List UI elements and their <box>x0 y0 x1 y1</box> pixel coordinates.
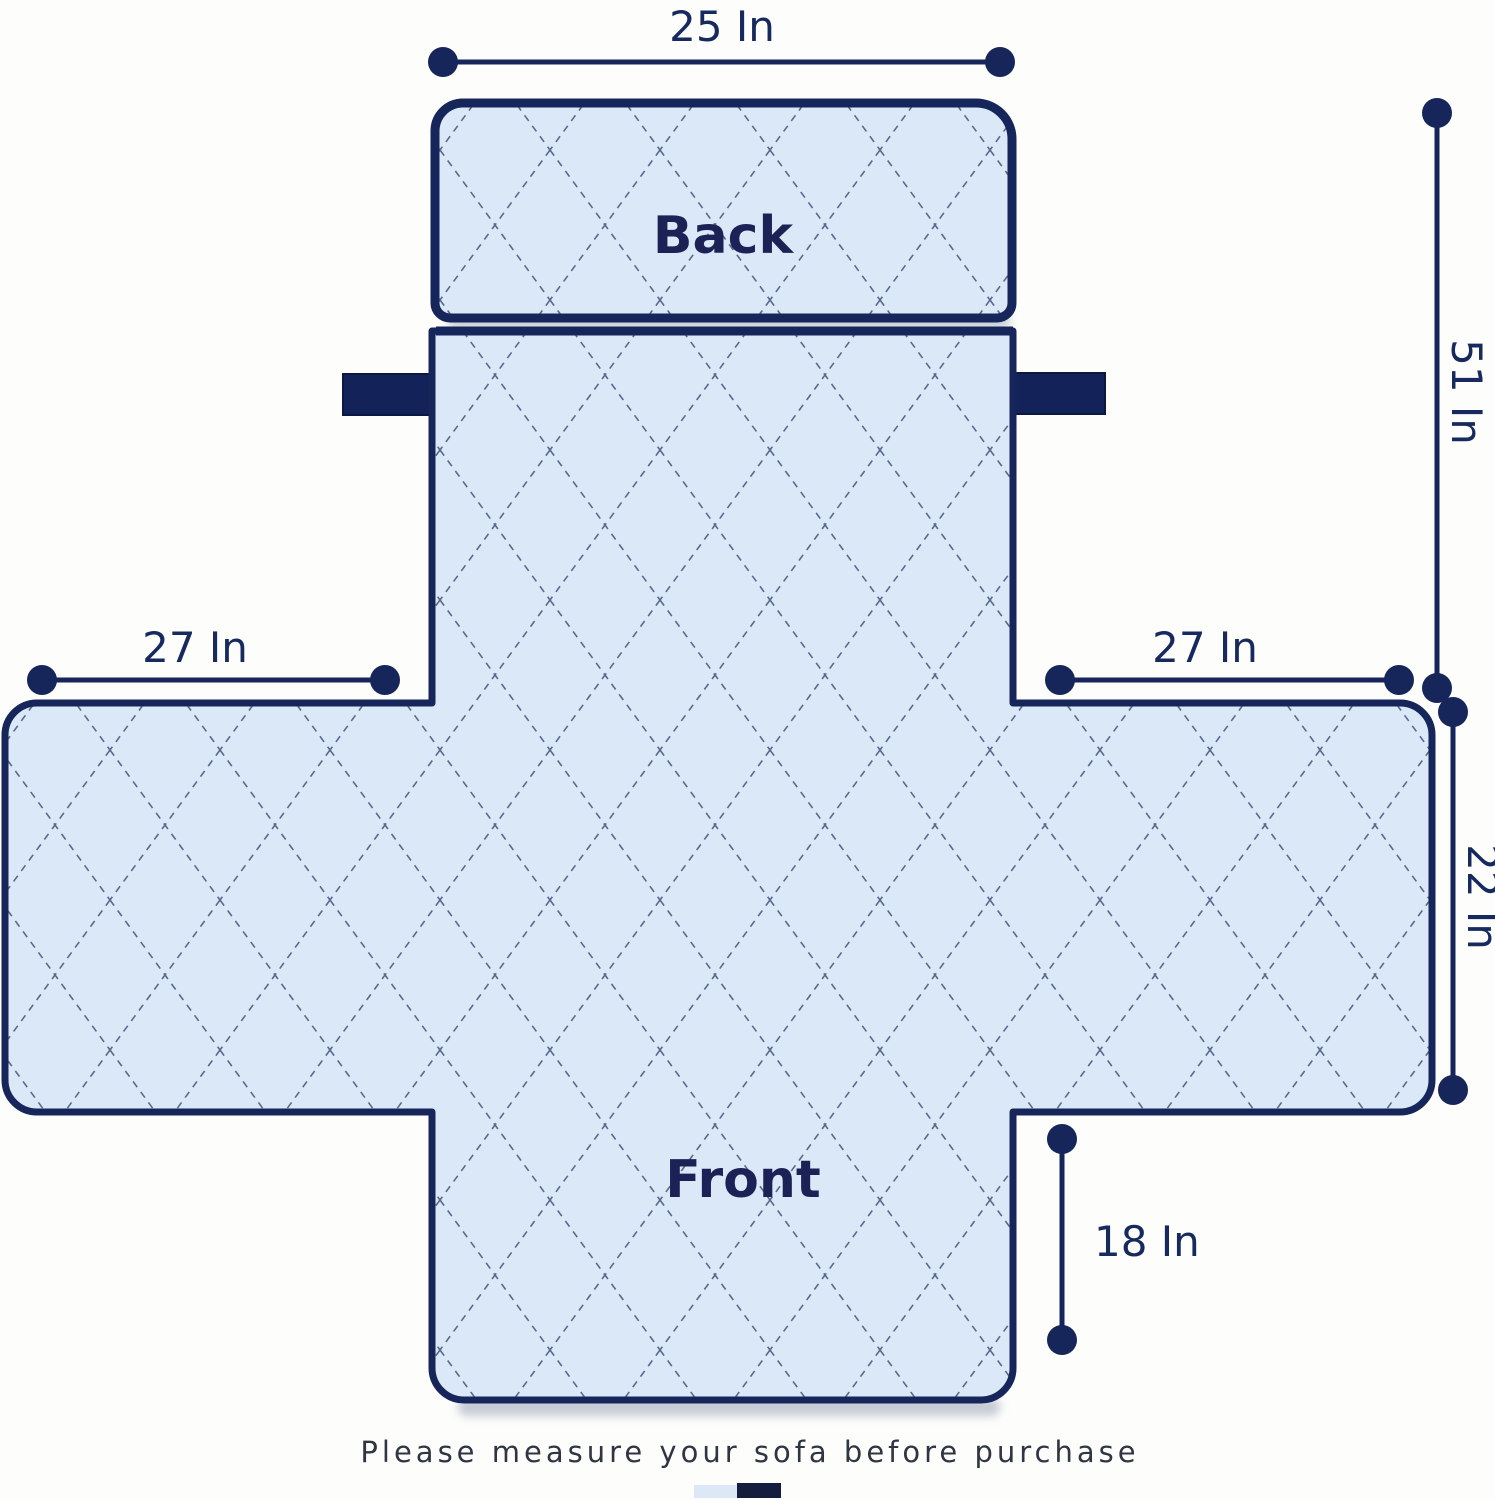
strap-right <box>1010 373 1105 414</box>
back-panel-label: Back <box>653 206 795 266</box>
dimension-endpoint-dot <box>1438 697 1468 727</box>
dim-left-arm: 27 In <box>27 623 400 695</box>
main-cover-piece <box>5 331 1432 1400</box>
measure-caption: Please measure your sofa before purchase <box>360 1435 1139 1469</box>
dimension-endpoint-dot <box>428 47 458 77</box>
dim-top-width-label: 25 In <box>669 2 775 51</box>
dim-right-arm-label: 27 In <box>1152 623 1258 672</box>
dimension-endpoint-dot <box>985 47 1015 77</box>
sofa-cover-diagram: Back Front 25 In 51 In 27 In <box>0 0 1495 1500</box>
dimension-endpoint-dot <box>1047 1124 1077 1154</box>
dim-total-height: 51 In <box>1422 98 1491 703</box>
dim-total-height-label: 51 In <box>1442 339 1491 445</box>
dim-right-arm: 27 In <box>1045 623 1414 695</box>
strap-left <box>343 374 435 415</box>
dimension-endpoint-dot <box>1422 98 1452 128</box>
swatch-light-blue <box>694 1485 737 1498</box>
dimension-endpoint-dot <box>1384 665 1414 695</box>
dim-front-skirt: 18 In <box>1047 1124 1200 1355</box>
dimension-endpoint-dot <box>1045 665 1075 695</box>
dim-side-height: 22 In <box>1438 697 1495 1105</box>
dimension-endpoint-dot <box>27 665 57 695</box>
dim-front-skirt-label: 18 In <box>1094 1217 1200 1266</box>
sofa-cover-diagram-page: Back Front 25 In 51 In 27 In <box>0 0 1495 1500</box>
dim-left-arm-label: 27 In <box>142 623 248 672</box>
dimension-endpoint-dot <box>1047 1325 1077 1355</box>
dim-side-height-label: 22 In <box>1458 844 1495 950</box>
swatch-navy <box>737 1483 781 1498</box>
dimension-endpoint-dot <box>1438 1075 1468 1105</box>
front-panel-label: Front <box>665 1150 820 1210</box>
dim-top-width: 25 In <box>428 2 1015 77</box>
dimension-endpoint-dot <box>370 665 400 695</box>
